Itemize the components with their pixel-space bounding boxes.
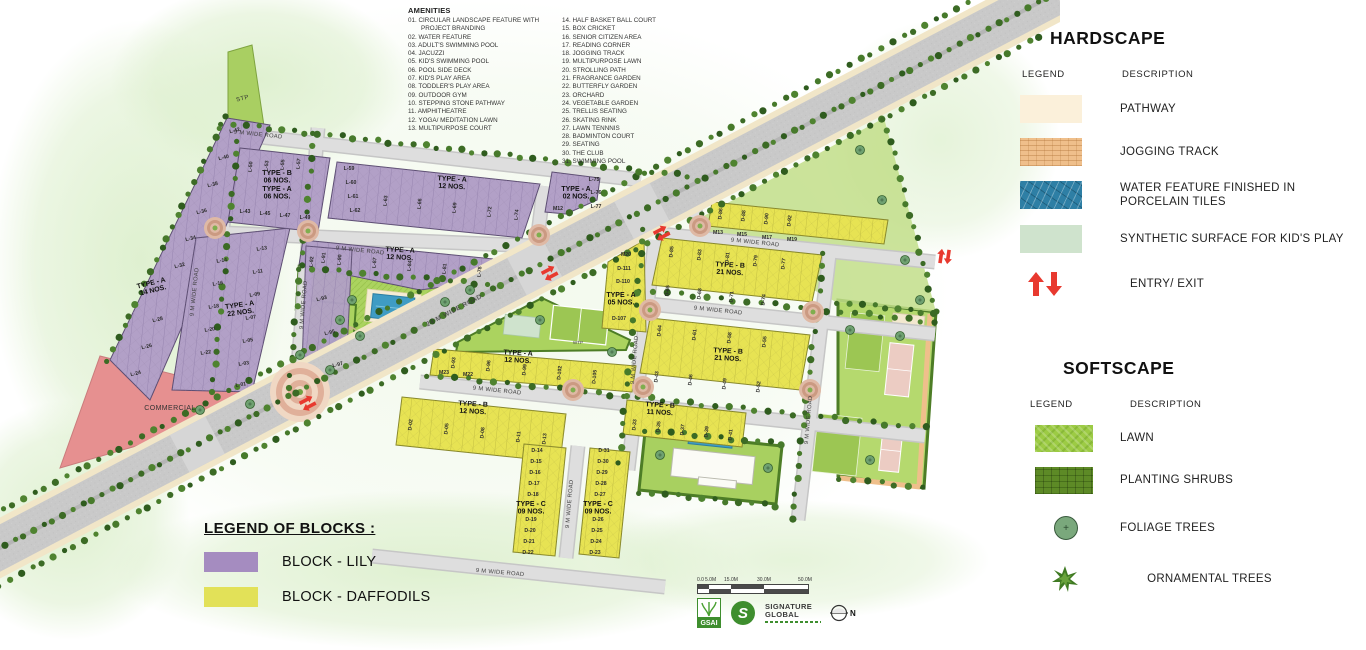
- tree: [390, 374, 396, 380]
- tree: [214, 337, 219, 342]
- gsai-logo: GSAI: [697, 598, 721, 628]
- synthetic-surface-swatch: [1020, 225, 1082, 253]
- tree: [424, 374, 429, 379]
- tree: [84, 462, 91, 469]
- tree: [1024, 4, 1031, 11]
- tree: [9, 502, 15, 508]
- tree: [931, 319, 937, 325]
- roundabout: [204, 217, 226, 239]
- plot-label: D-61: [691, 329, 698, 341]
- tree: [99, 492, 104, 497]
- tree: [781, 168, 788, 175]
- tree: [459, 266, 465, 272]
- tree: [398, 141, 403, 146]
- plot-label: D-24: [590, 539, 601, 545]
- tree: [225, 426, 231, 432]
- tree: [295, 278, 302, 285]
- signature-global-icon: S: [730, 600, 756, 626]
- plot-label: D-111: [617, 266, 631, 272]
- tree: [346, 270, 352, 276]
- tree: [327, 132, 332, 137]
- tree: [818, 275, 825, 282]
- tree: [684, 184, 689, 189]
- svg-text:TYPE - A: TYPE - A: [561, 186, 590, 193]
- tree: [186, 447, 191, 452]
- tree: [590, 197, 596, 203]
- svg-text:TYPE - C: TYPE - C: [583, 501, 613, 508]
- tree: [292, 389, 299, 396]
- tree: [400, 333, 406, 339]
- tree: [13, 537, 18, 542]
- tree: [928, 55, 934, 61]
- scale-bar-graphic: [697, 584, 809, 594]
- tree: [1014, 11, 1020, 17]
- amenity-item: 30. THE CLUB: [562, 150, 708, 158]
- tree: [676, 224, 682, 230]
- north-label: N: [850, 609, 856, 618]
- tree: [232, 162, 239, 169]
- tree: [167, 456, 173, 462]
- svg-text:06 NOS.: 06 NOS.: [264, 178, 291, 185]
- tree: [529, 383, 536, 390]
- tree: [961, 73, 967, 79]
- tree: [624, 393, 630, 399]
- tree: [558, 249, 565, 256]
- tree: [104, 525, 110, 531]
- tree: [88, 497, 95, 504]
- tree: [309, 344, 316, 351]
- amenities-col1: 01. CIRCULAR LANDSCAPE FEATURE WITH PROJ…: [408, 17, 554, 166]
- tree: [870, 418, 876, 424]
- tree: [699, 403, 704, 408]
- tree: [934, 16, 939, 21]
- tree: [52, 479, 59, 486]
- tree: [341, 327, 348, 334]
- tree: [453, 341, 459, 347]
- tree: [253, 411, 259, 417]
- tree: [363, 137, 368, 142]
- description-header: DESCRIPTION: [1130, 399, 1202, 410]
- tree: [832, 414, 838, 420]
- tree: [819, 263, 825, 269]
- scale-labels: 0.0 5.0M 15.0M 30.0M 50.0M: [697, 577, 877, 584]
- tree: [476, 378, 482, 384]
- tree: [642, 171, 647, 176]
- tree: [157, 462, 162, 467]
- tree: [229, 191, 235, 197]
- tree: [490, 285, 496, 291]
- tree: [635, 168, 642, 175]
- amenity-item: 02. WATER FEATURE: [408, 34, 554, 42]
- roundabout: [528, 224, 550, 246]
- tree: [364, 315, 370, 321]
- tree: [694, 178, 700, 184]
- tree: [424, 274, 430, 280]
- plot-label: D-43: [653, 371, 660, 383]
- amenity-item: 06. POOL SIDE DECK: [408, 67, 554, 75]
- tree: [383, 274, 389, 280]
- tree: [602, 264, 607, 269]
- roundabout: [562, 379, 584, 401]
- tree: [309, 168, 314, 173]
- plot-label: D-77: [780, 258, 787, 270]
- tree: [213, 349, 219, 355]
- tree: [509, 277, 514, 282]
- tree: [847, 62, 853, 68]
- plot-label: D-18: [527, 492, 538, 498]
- plot-label: L-92: [308, 256, 315, 267]
- tree: [716, 131, 722, 137]
- amenity-item: 01. CIRCULAR LANDSCAPE FEATURE WITH PROJ…: [408, 17, 554, 34]
- tree: [176, 212, 182, 218]
- plot-label: D-30: [597, 459, 608, 465]
- tree: [685, 174, 690, 179]
- tree: [880, 117, 885, 122]
- plot-label: D-55: [761, 336, 768, 348]
- tree: [110, 346, 116, 352]
- tree: [616, 460, 621, 465]
- roundabout: [297, 220, 319, 242]
- roundabout: [802, 301, 824, 323]
- amenity-item: 03. ADULT'S SWIMMING POOL: [408, 42, 554, 50]
- tree: [918, 319, 923, 324]
- plot-label: D-90: [763, 213, 770, 225]
- tree: [846, 301, 852, 307]
- tree: [566, 247, 571, 252]
- tree: [451, 269, 456, 274]
- jogging-track-label: JOGGING TRACK: [1120, 145, 1350, 159]
- roundabout: [689, 215, 711, 237]
- tree: [353, 322, 358, 327]
- tree: [490, 378, 497, 385]
- tree: [884, 127, 890, 133]
- tree: [791, 127, 798, 134]
- plot-label: D-22: [522, 550, 533, 556]
- tree: [396, 298, 402, 304]
- plot-label: L-63: [382, 195, 389, 206]
- tree: [448, 278, 453, 283]
- legend-row-entry-exit: ENTRY/ EXIT: [1018, 268, 1366, 300]
- plot-label: L-72: [486, 206, 493, 217]
- tree: [772, 102, 777, 107]
- tree: [847, 132, 854, 139]
- tree: [738, 191, 744, 197]
- plot-label: D-71: [728, 291, 735, 303]
- tree: [201, 159, 206, 164]
- tree: [125, 313, 131, 319]
- tree: [243, 122, 250, 129]
- tree: [218, 429, 223, 434]
- amenity-item: 23. ORCHARD: [562, 92, 708, 100]
- plot-label: L-84: [406, 260, 413, 271]
- plot-label: L-81: [441, 263, 448, 274]
- tree: [838, 310, 843, 315]
- tree: [49, 518, 55, 524]
- tree: [957, 41, 963, 47]
- tree: [515, 383, 521, 389]
- svg-text:12 NOS.: 12 NOS.: [459, 408, 486, 416]
- tree: [925, 286, 932, 293]
- tree: [649, 170, 654, 175]
- tree: [893, 150, 898, 155]
- tree: [707, 207, 713, 213]
- tree: [125, 515, 130, 520]
- plot-label: L-60: [346, 180, 357, 186]
- svg-text:21 NOS.: 21 NOS.: [714, 355, 741, 363]
- tree: [698, 495, 705, 502]
- block-type-label: TYPE - A12 NOS.: [385, 246, 415, 262]
- tree: [291, 318, 298, 325]
- tree: [629, 329, 636, 336]
- tree: [935, 52, 942, 59]
- tree: [781, 133, 787, 139]
- scale-5: 5.0M: [705, 577, 716, 583]
- plot-label: L-62: [350, 208, 361, 214]
- amenity-item: 21. FRAGRANCE GARDEN: [562, 75, 708, 83]
- tree: [985, 26, 991, 32]
- tree: [291, 332, 296, 337]
- legend-row-lily: BLOCK - LILY: [204, 552, 431, 572]
- tree: [807, 370, 812, 375]
- tree: [278, 126, 285, 133]
- tree: [719, 295, 724, 300]
- tree: [920, 485, 925, 490]
- tree: [589, 269, 596, 276]
- plot-label: D-14: [531, 448, 542, 454]
- tree: [359, 391, 365, 397]
- tree: [858, 55, 865, 62]
- plot-label: L-55: [279, 159, 286, 170]
- tree: [547, 220, 552, 225]
- tree: [673, 189, 680, 196]
- tree: [70, 544, 76, 550]
- tree: [728, 124, 735, 131]
- tree: [304, 209, 309, 214]
- tree: [483, 253, 488, 258]
- tree: [401, 367, 408, 374]
- plot-label: L-45: [260, 211, 271, 217]
- tree: [570, 280, 575, 285]
- amenity-item: 27. LAWN TENNNIS: [562, 125, 708, 133]
- tree: [131, 301, 138, 308]
- tree: [290, 344, 296, 350]
- tree: [691, 433, 697, 439]
- tree: [634, 211, 640, 217]
- plot-label: D-81: [724, 252, 731, 264]
- tree: [537, 262, 542, 267]
- plot-label: L-49: [300, 215, 311, 221]
- tree: [228, 203, 235, 210]
- block-type-label: TYPE - B11 NOS.: [645, 401, 675, 417]
- tree: [197, 167, 204, 174]
- tree: [896, 423, 901, 428]
- tree: [668, 428, 675, 435]
- tree: [764, 408, 771, 415]
- amenities-panel: AMENITIES 01. CIRCULAR LANDSCAPE FEATURE…: [408, 6, 710, 166]
- tree: [642, 429, 647, 434]
- tree: [857, 418, 862, 423]
- tree: [674, 170, 681, 177]
- tree: [261, 443, 267, 449]
- tree: [633, 247, 638, 252]
- tree: [908, 307, 913, 312]
- tree: [836, 139, 842, 145]
- tree: [856, 130, 861, 135]
- tree: [795, 475, 802, 482]
- tree: [336, 267, 341, 272]
- tree: [712, 403, 718, 409]
- amenity-item: 31. SWIMMING POOL: [562, 158, 708, 166]
- tree: [915, 235, 921, 241]
- tree: [889, 77, 894, 82]
- tree: [253, 447, 258, 452]
- tree: [210, 377, 215, 382]
- plot-label: L-87: [371, 257, 378, 268]
- scale-15: 15.0M: [724, 577, 738, 583]
- tree: [897, 175, 904, 182]
- amenities-title: AMENITIES: [408, 6, 710, 15]
- tree: [831, 107, 836, 112]
- tree: [867, 88, 873, 94]
- amenity-item: 24. VEGETABLE GARDEN: [562, 100, 708, 108]
- tree: [921, 22, 928, 29]
- tree: [634, 303, 639, 308]
- tree: [277, 360, 284, 367]
- tree: [815, 78, 821, 84]
- plot-label: M22: [463, 372, 473, 378]
- tree: [170, 224, 175, 229]
- tree: [613, 257, 619, 263]
- tree: [873, 302, 878, 307]
- plot-label: L-78: [476, 266, 483, 277]
- tree: [905, 483, 912, 490]
- north-arrow-icon: [830, 604, 848, 622]
- tree: [245, 377, 252, 384]
- water-feature-label: WATER FEATURE FINISHED IN PORCELAIN TILE…: [1120, 181, 1350, 210]
- tree: [432, 351, 439, 358]
- tree: [213, 134, 220, 141]
- pathway-label: PATHWAY: [1120, 102, 1350, 116]
- tree: [107, 450, 113, 456]
- plot-label: M17: [762, 235, 772, 241]
- plot-label: D-79: [752, 255, 759, 267]
- tree: [327, 407, 333, 413]
- tree: [619, 432, 625, 438]
- plot-label: D-86: [717, 208, 724, 220]
- tree: [411, 275, 416, 280]
- tree: [676, 492, 681, 497]
- tree: [909, 423, 915, 429]
- block-type-label: TYPE - A06 NOS.: [262, 186, 291, 201]
- tree: [889, 38, 896, 45]
- tree: [910, 99, 917, 106]
- entry-exit-arrows-icon: [1028, 268, 1068, 300]
- tree: [321, 338, 326, 343]
- svg-text:S: S: [738, 605, 748, 622]
- tree: [812, 151, 819, 158]
- tree: [289, 356, 296, 363]
- svg-text:05 NOS.: 05 NOS.: [608, 300, 635, 307]
- plot-label: D-85: [668, 246, 675, 258]
- plot-label: L-74: [513, 209, 520, 220]
- plot-label: D-74: [760, 294, 767, 306]
- tree: [741, 405, 746, 410]
- lawn-label: LAWN: [1120, 431, 1350, 445]
- ornamental-tree-icon: [1050, 564, 1080, 594]
- lily-swatch: [204, 552, 258, 572]
- description-header: DESCRIPTION: [1122, 69, 1194, 80]
- tree: [154, 257, 159, 262]
- block-type-label: TYPE - A02 NOS.: [561, 186, 590, 201]
- tree: [797, 437, 804, 444]
- tree: [867, 52, 872, 57]
- plot-label: D-20: [524, 528, 535, 534]
- amenity-item: 14. HALF BASKET BALL COURT: [562, 17, 708, 25]
- tree: [751, 408, 757, 414]
- planting-shrubs-swatch: [1035, 467, 1093, 494]
- plot-label: D-29: [596, 470, 607, 476]
- tree: [922, 94, 927, 99]
- plot-label: D-02: [407, 419, 414, 431]
- page: STP COMMERCIAL WTP 24 M WIDE ROAD 9 M WI…: [0, 0, 1366, 650]
- tree: [139, 433, 145, 439]
- plot-label: M19: [787, 237, 797, 243]
- hardscape-legend: HARDSCAPE LEGEND DESCRIPTION PATHWAY JOG…: [1018, 28, 1366, 300]
- tree: [838, 103, 844, 109]
- plot-label: D-41: [727, 429, 734, 441]
- tree: [813, 329, 818, 334]
- amenity-item: 09. OUTDOOR GYM: [408, 92, 554, 100]
- tree: [372, 348, 378, 354]
- tree: [42, 522, 47, 527]
- plot-label: L-57: [295, 158, 302, 169]
- tree: [596, 389, 602, 395]
- tree: [996, 54, 1002, 60]
- amenity-item: 12. YOGA/ MEDITATION LAWN: [408, 117, 554, 125]
- brand-tagline: [765, 621, 821, 623]
- tree: [527, 302, 534, 309]
- plot-label: D-93: [450, 357, 457, 369]
- tree: [266, 367, 272, 373]
- tree: [772, 503, 779, 510]
- plot-label: D-25: [591, 528, 602, 534]
- tree: [275, 399, 280, 404]
- tree: [783, 95, 789, 101]
- softscape-title: SOFTSCAPE: [1063, 358, 1366, 379]
- blocks-legend: LEGEND OF BLOCKS : BLOCK - LILY BLOCK - …: [204, 520, 431, 607]
- tree: [264, 404, 271, 411]
- tree: [996, 19, 1003, 26]
- legend-row-lawn: LAWN: [1018, 425, 1366, 452]
- tree: [905, 315, 912, 322]
- tree: [349, 135, 356, 142]
- tree: [497, 282, 504, 289]
- tree: [217, 126, 222, 131]
- tree: [891, 482, 897, 488]
- tree: [762, 142, 769, 149]
- tree: [755, 438, 760, 443]
- tree: [207, 146, 213, 152]
- tree: [620, 421, 625, 426]
- tree: [867, 123, 873, 129]
- tree: [799, 125, 804, 130]
- tree: [519, 270, 525, 276]
- svg-text:02 NOS.: 02 NOS.: [563, 194, 590, 201]
- tree: [690, 294, 696, 300]
- tree: [878, 45, 884, 51]
- tree: [31, 564, 36, 569]
- tree: [804, 85, 809, 90]
